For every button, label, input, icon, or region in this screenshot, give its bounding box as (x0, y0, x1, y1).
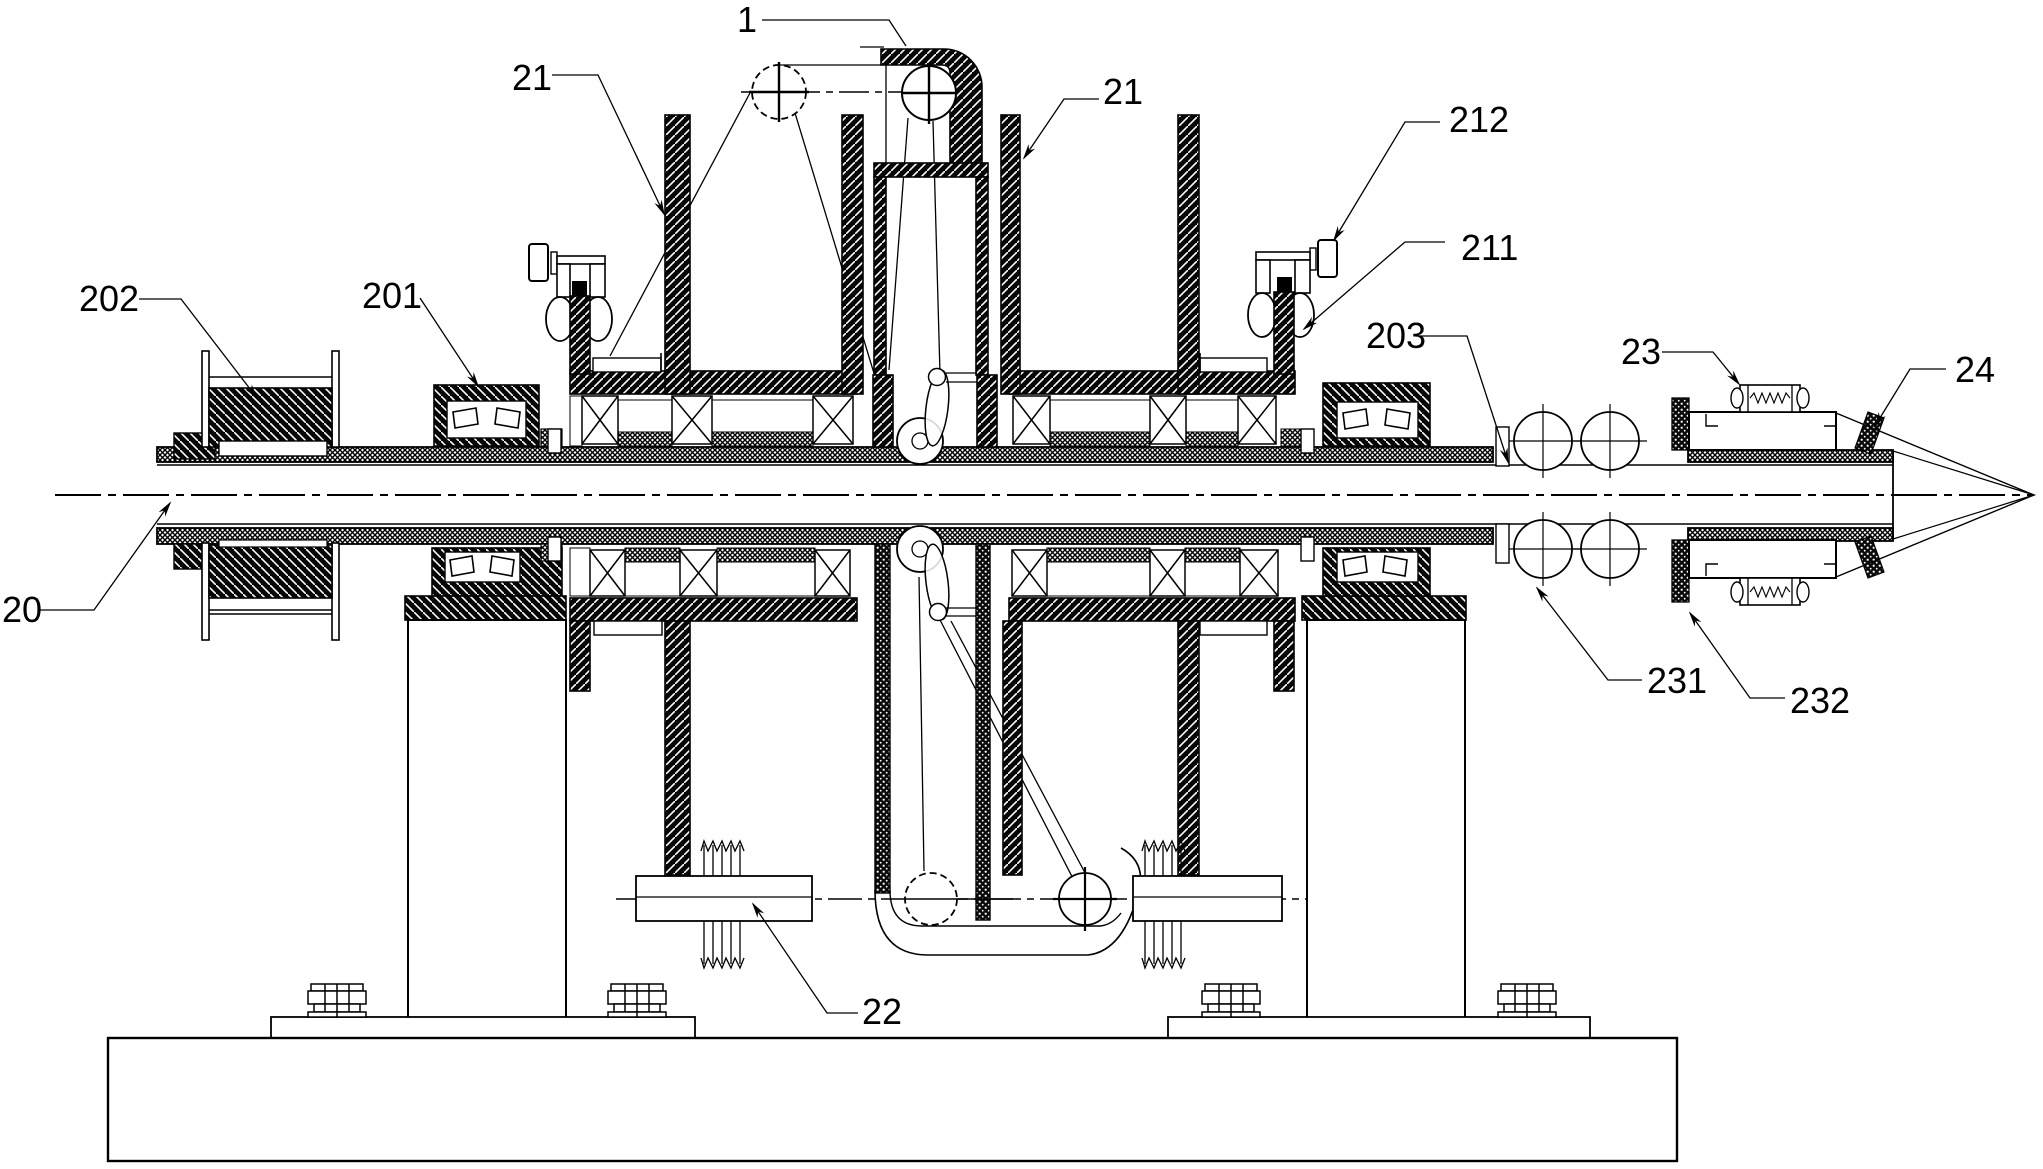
svg-text:22: 22 (862, 991, 902, 1032)
svg-text:21: 21 (1103, 71, 1143, 112)
svg-text:232: 232 (1790, 680, 1850, 721)
svg-text:23: 23 (1621, 331, 1661, 372)
svg-text:211: 211 (1461, 227, 1518, 268)
svg-text:201: 201 (362, 275, 422, 316)
svg-text:203: 203 (1366, 315, 1426, 356)
svg-text:21: 21 (512, 57, 552, 98)
svg-text:20: 20 (2, 589, 42, 630)
svg-text:202: 202 (79, 278, 139, 319)
svg-text:231: 231 (1647, 660, 1707, 701)
svg-text:24: 24 (1955, 349, 1995, 390)
svg-text:1: 1 (737, 0, 757, 40)
svg-text:212: 212 (1449, 99, 1509, 140)
